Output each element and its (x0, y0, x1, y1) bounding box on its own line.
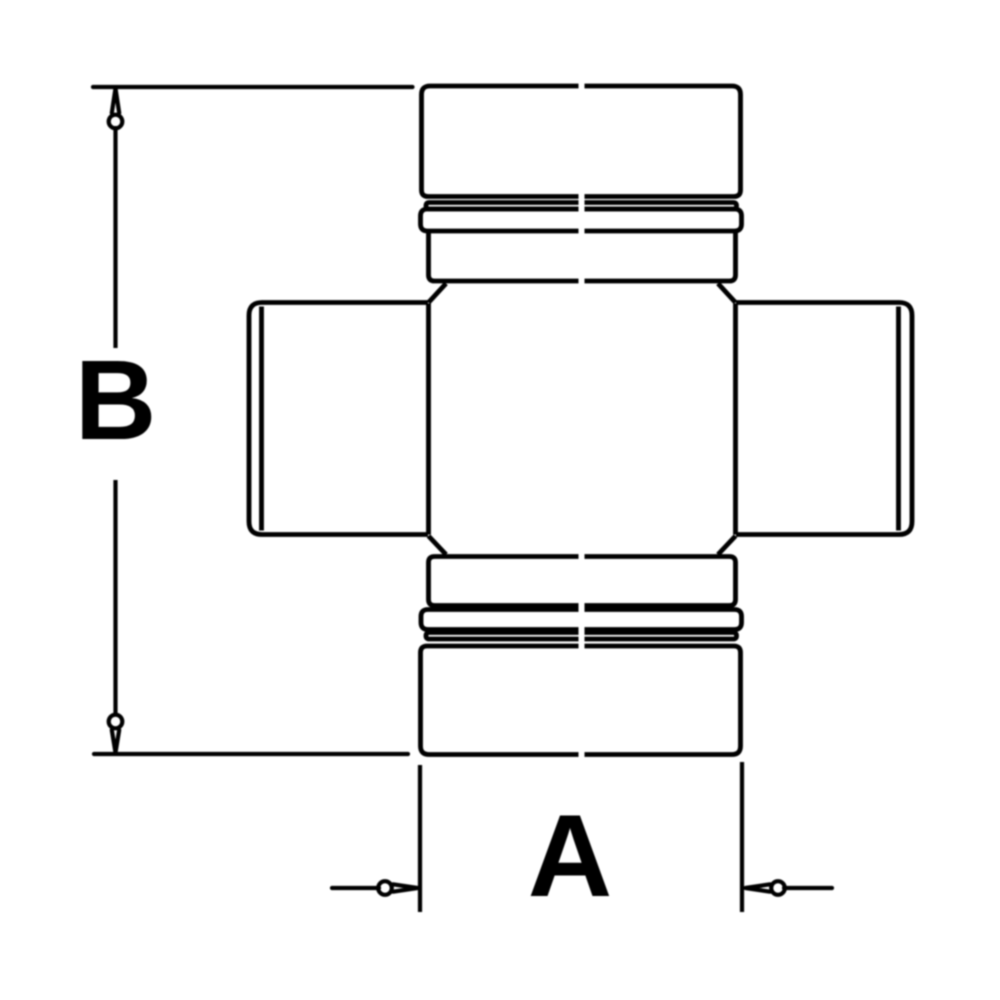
svg-text:A: A (528, 790, 613, 921)
svg-text:B: B (75, 337, 157, 463)
